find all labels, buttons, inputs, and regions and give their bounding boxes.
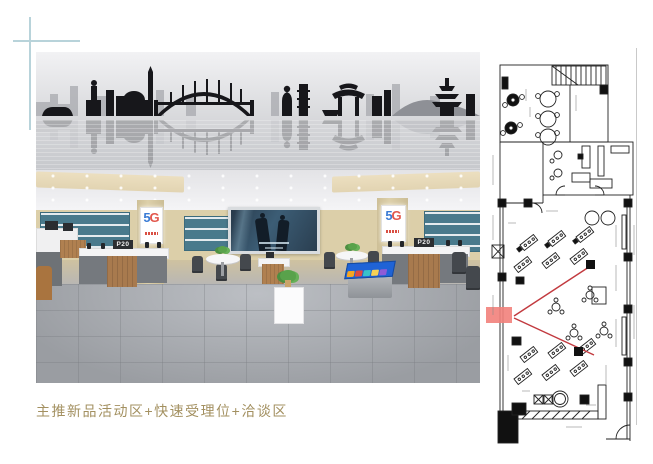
negotiation-tables: [548, 286, 612, 340]
entrance-door-arc: [616, 425, 630, 439]
poster-5g-right: 5G: [381, 205, 406, 242]
chair: [452, 252, 466, 272]
slide-page: 5G 5G: [0, 0, 653, 464]
wall-counter: [622, 317, 626, 355]
table-side: [137, 256, 167, 283]
annotation-marks: [493, 89, 634, 427]
app-tile: [379, 269, 387, 275]
tile-floor: [36, 284, 480, 383]
staircase: [552, 66, 606, 85]
touch-table: [344, 262, 396, 300]
app-tile: [355, 270, 363, 276]
wall-columns: [498, 199, 632, 401]
dark-round-table: [501, 122, 523, 135]
touch-table-screen: [344, 261, 396, 279]
round-table: [536, 91, 560, 145]
round-table: [585, 211, 599, 225]
phone-display: [266, 252, 274, 258]
crossed-box: [534, 395, 553, 404]
dark-round-table: [503, 94, 525, 107]
flower-pedestal: [274, 270, 302, 322]
upper-room: [500, 65, 608, 145]
ceiling-lights: [36, 170, 480, 210]
app-tile: [371, 270, 379, 276]
sign-p20-right: P20: [414, 238, 434, 247]
poster-subtext: [386, 230, 399, 233]
wall-counter: [622, 215, 626, 249]
video-wall: [228, 207, 320, 254]
poster-5g-left: 5G: [140, 207, 163, 244]
experience-desks-upper: [514, 227, 594, 284]
crop-guide-horizontal: [13, 40, 80, 42]
phone-display: [157, 242, 161, 248]
table-wood-base: [408, 254, 440, 288]
screen-figure-head: [260, 213, 265, 218]
plant: [348, 243, 357, 250]
phone-display: [145, 242, 149, 248]
round-table: [601, 211, 615, 225]
screen-figure-head: [280, 215, 285, 220]
app-tile: [347, 271, 355, 277]
chair: [192, 256, 203, 271]
chair: [466, 266, 480, 288]
phone-display: [400, 241, 404, 247]
phone-display: [101, 243, 105, 249]
video-wall-screen: [231, 210, 317, 251]
poster-subtext: [145, 232, 158, 235]
table-leg: [221, 262, 224, 276]
store-render-image: 5G 5G: [36, 52, 480, 383]
sign-p20-left: P20: [113, 240, 133, 249]
reflection-banding: [36, 120, 480, 172]
counter-monitor: [45, 221, 58, 230]
app-tile: [363, 270, 371, 276]
door-arc: [532, 203, 542, 213]
service-room: [500, 142, 633, 195]
screen-caption-line: [265, 247, 283, 249]
floor-plan: [486, 55, 640, 449]
mural-reflection: [36, 120, 480, 172]
bottom-wall-zone: [498, 385, 630, 443]
chair: [240, 254, 251, 269]
counter-monitor: [63, 223, 73, 231]
phone-display: [458, 240, 462, 246]
plant: [218, 246, 227, 253]
experience-desks-lower: [512, 337, 596, 385]
phone-display: [388, 241, 392, 247]
phone-display: [87, 243, 91, 249]
table-side: [79, 256, 107, 284]
screen-caption-line: [259, 242, 289, 244]
slide-caption: 主推新品活动区+快速受理位+洽谈区: [36, 401, 288, 421]
chair: [324, 252, 335, 267]
chair-foreground-left: [36, 266, 52, 300]
page-edge-line: [636, 48, 637, 425]
negotiation-set-left: [192, 248, 256, 282]
phone-display: [446, 240, 450, 246]
pedestal: [274, 287, 304, 324]
crop-guide-vertical: [29, 17, 31, 130]
table-wood-base: [107, 256, 137, 287]
window-box: [492, 245, 504, 258]
p20-table-left: P20: [79, 248, 167, 288]
skyline-mural: [36, 52, 480, 120]
